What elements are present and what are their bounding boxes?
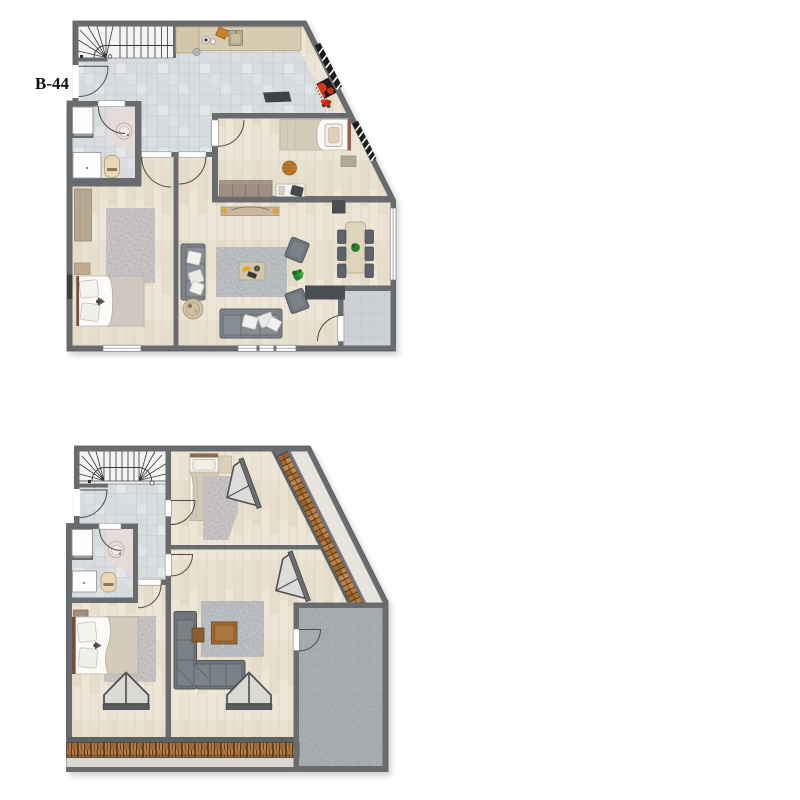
svg-text:B-44: B-44 [35, 74, 70, 93]
